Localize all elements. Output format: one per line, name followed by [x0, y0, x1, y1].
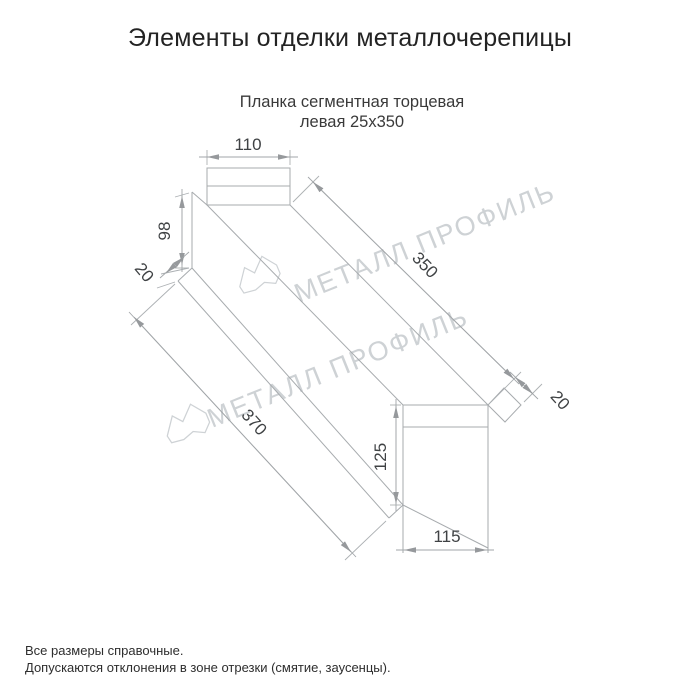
footer-note-1: Все размеры справочные.: [25, 642, 391, 659]
far-end-top-edge: [192, 192, 207, 205]
footer-notes: Все размеры справочные. Допускаются откл…: [25, 642, 391, 676]
dim-label-125: 125: [371, 443, 390, 471]
dim-20near: [515, 377, 533, 394]
dim-label-20-left: 20: [131, 259, 158, 286]
ext-350-end: [491, 372, 521, 402]
watermark-layer: МЕТАЛЛ ПРОФИЛЬ МЕТАЛЛ ПРОФИЛЬ: [163, 176, 560, 443]
footer-note-2: Допускаются отклонения в зоне отрезки (с…: [25, 659, 391, 676]
technical-drawing: МЕТАЛЛ ПРОФИЛЬ МЕТАЛЛ ПРОФИЛЬ: [0, 0, 700, 700]
ext-350-start: [293, 176, 319, 202]
near-end-fold-tab: [488, 388, 521, 422]
dim-label-110: 110: [234, 135, 261, 154]
dim-label-98: 98: [155, 222, 174, 241]
catalog-drawing-page: Элементы отделки металлочерепицы Планка …: [0, 0, 700, 700]
ext-370-start: [131, 284, 175, 325]
ext-20near: [524, 384, 542, 402]
dim-label-20-right: 20: [547, 387, 574, 414]
brand-logo-icon: [235, 254, 282, 294]
watermark-text: МЕТАЛЛ ПРОФИЛЬ: [290, 176, 560, 308]
dim-370: [134, 317, 351, 552]
ext-370-end: [345, 521, 386, 560]
dim-label-115: 115: [433, 527, 460, 546]
